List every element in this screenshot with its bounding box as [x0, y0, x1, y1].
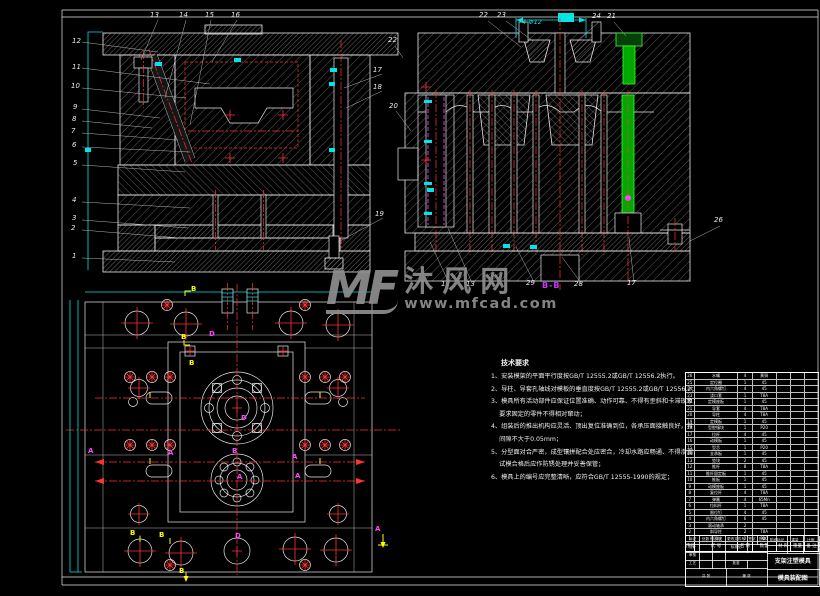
callout: 4 — [72, 197, 76, 204]
bom-cell: 限位钉 — [695, 510, 739, 516]
section-mark-b: B — [179, 568, 184, 575]
bom-cell — [791, 380, 805, 386]
bom-cell: 弹簧 — [695, 497, 739, 503]
section-mark-a: A — [375, 526, 380, 533]
bom-cell — [777, 477, 791, 483]
bom-cell: 1 — [738, 399, 752, 405]
bom-cell — [805, 497, 819, 503]
bom-cell: 拉杆 — [695, 432, 739, 438]
bom-cell: 1 — [738, 477, 752, 483]
bom-cell — [777, 523, 791, 529]
bom-cell — [791, 523, 805, 529]
tech-line: 5、分型面对合严密，成型镶拼配合处应密合，冷却水路应畅通、不得渗漏， — [491, 447, 677, 460]
bom-cell: 45 — [753, 438, 777, 444]
bom-cell — [777, 393, 791, 399]
bom-cell — [791, 432, 805, 438]
bom-cell — [777, 484, 791, 490]
section-mark-a: A — [295, 473, 300, 480]
callout: 20 — [389, 103, 398, 110]
bom-cell — [805, 490, 819, 496]
bom-cell: 8 — [686, 490, 695, 496]
bom-cell — [791, 419, 805, 425]
bom-cell — [791, 445, 805, 451]
front-section-view — [82, 20, 411, 272]
bom-cell: 4 — [738, 406, 752, 412]
section-mark-b: B — [232, 448, 237, 455]
bom-cell: 45 — [753, 386, 777, 392]
bom-cell — [791, 438, 805, 444]
bom-cell: 定模座板 — [695, 399, 739, 405]
bom-cell: 内六角螺钉 — [695, 386, 739, 392]
bom-cell: 7 — [686, 497, 695, 503]
tb-sheets: 共 张 — [686, 568, 727, 588]
technical-requirements: 技术要求 1、安装模架的平面平行度按GB/T 12555.2或GB/T 1255… — [491, 358, 677, 484]
bom-cell: 复位杆 — [695, 490, 739, 496]
bom-cell — [777, 510, 791, 516]
bom-cell: T8A — [753, 490, 777, 496]
bom-cell: 45 — [753, 451, 777, 457]
callout: 9 — [73, 104, 77, 111]
tech-line: 间隙不大于0.05mm； — [491, 434, 677, 447]
bom-cell: 浇口套 — [695, 393, 739, 399]
callout: 3 — [72, 215, 76, 222]
bom-cell: 定模板 — [695, 419, 739, 425]
bom-cell: 导柱 — [695, 412, 739, 418]
bom-cell: 内六角螺钉 — [695, 516, 739, 522]
bom-cell — [805, 393, 819, 399]
top-dimension-text: 4-Φ12 — [522, 18, 542, 26]
bom-cell: 8 — [738, 464, 752, 470]
bom-cell: 45 — [753, 510, 777, 516]
bom-table: 26水嘴4黄铜25定位圈14524内六角螺钉44523浇口套1T8A22定模座板… — [685, 372, 819, 552]
section-mark-b: B — [189, 360, 194, 367]
bom-cell: 1 — [738, 471, 752, 477]
bom-cell: 5 — [686, 510, 695, 516]
section-mark-a: A — [168, 450, 173, 457]
bom-cell: 21 — [686, 406, 695, 412]
bom-cell: 15 — [686, 445, 695, 451]
callout: 21 — [607, 13, 616, 20]
bom-cell: T8A — [753, 393, 777, 399]
bom-cell — [777, 406, 791, 412]
bom-cell: 1 — [738, 445, 752, 451]
bom-cell: T8A — [753, 464, 777, 470]
bom-cell — [791, 386, 805, 392]
bom-cell: 12 — [686, 464, 695, 470]
bom-cell: T8A — [753, 406, 777, 412]
tech-line: 3、模具所有活动部件应保证位置准确、动作可靠、不得有歪斜和卡滞现象； — [491, 396, 677, 409]
bom-cell: 22 — [686, 399, 695, 405]
section-mark-b: B — [159, 532, 164, 539]
callout: 22 — [388, 37, 397, 44]
callout: 26 — [714, 217, 723, 224]
callout: 1 — [72, 253, 76, 260]
bom-cell: 1 — [738, 419, 752, 425]
tech-line: 要求固定的零件不得相对窜动； — [491, 409, 677, 422]
bom-cell — [777, 432, 791, 438]
callout: 18 — [373, 84, 382, 91]
bom-cell: 4 — [738, 432, 752, 438]
bom-cell: 45 — [753, 458, 777, 464]
bom-cell — [805, 471, 819, 477]
bom-cell: 动模座板 — [695, 484, 739, 490]
bom-cell: 4 — [686, 516, 695, 522]
bom-cell — [777, 373, 791, 379]
bom-cell — [805, 438, 819, 444]
bom-cell — [805, 477, 819, 483]
bom-cell — [791, 451, 805, 457]
bom-cell — [805, 399, 819, 405]
plan-view — [66, 283, 400, 582]
bom-cell: 4 — [738, 412, 752, 418]
bom-cell — [753, 523, 777, 529]
bom-cell — [791, 458, 805, 464]
section-mark-b: B — [130, 530, 135, 537]
bom-cell: 10 — [686, 477, 695, 483]
bom-cell: 9 — [686, 484, 695, 490]
bom-cell: 定位圈 — [695, 380, 739, 386]
technical-requirements-title: 技术要求 — [491, 358, 677, 368]
bom-cell — [805, 386, 819, 392]
bom-cell: 滚动轴承 — [695, 523, 739, 529]
cad-sheet: 4-Φ12 — [0, 0, 820, 596]
bom-cell: 45 — [753, 399, 777, 405]
bom-cell — [791, 477, 805, 483]
callout: 14 — [179, 12, 188, 19]
bom-cell — [805, 464, 819, 470]
bom-cell — [777, 497, 791, 503]
bom-cell: 1 — [738, 484, 752, 490]
tb-drawing-subname: 模具装配图 — [767, 569, 820, 588]
bom-cell: 6 — [686, 503, 695, 509]
bom-cell: 45 — [753, 380, 777, 386]
section-mark-b: B — [191, 286, 196, 293]
callout: 13 — [150, 12, 159, 19]
callout: 24 — [592, 13, 601, 20]
bom-cell — [805, 510, 819, 516]
bom-cell — [777, 438, 791, 444]
bom-cell — [777, 380, 791, 386]
bom-cell: 1 — [738, 451, 752, 457]
callout: 10 — [71, 83, 80, 90]
section-mark-a: A — [237, 474, 242, 481]
bom-cell — [791, 393, 805, 399]
bom-cell — [777, 516, 791, 522]
bom-cell — [791, 503, 805, 509]
bom-cell: 17 — [686, 432, 695, 438]
bom-cell — [777, 386, 791, 392]
bom-cell: 动模板 — [695, 438, 739, 444]
bom-cell: 14 — [686, 451, 695, 457]
bom-cell: 水嘴 — [695, 373, 739, 379]
bom-cell: 1 — [738, 503, 752, 509]
bom-cell: P20 — [753, 425, 777, 431]
bom-cell — [791, 399, 805, 405]
bom-cell: 26 — [686, 373, 695, 379]
watermark-logo: MF — [326, 266, 398, 314]
bom-cell: 1 — [738, 380, 752, 386]
bom-cell — [791, 425, 805, 431]
tech-line: 6、模具上的编号应完整清晰，应符合GB/T 12555-1990的规定； — [491, 472, 677, 485]
bom-cell — [805, 373, 819, 379]
tech-line: 4、组装后的推出机构应灵活、顶出复位准确到位，各承压面接触良好，其 — [491, 421, 677, 434]
callout: 19 — [375, 211, 384, 218]
bom-cell — [805, 380, 819, 386]
callout: 15 — [205, 12, 214, 19]
bom-cell — [777, 451, 791, 457]
bom-cell: 1 — [738, 393, 752, 399]
section-mark-d: D — [241, 415, 247, 422]
bom-cell — [777, 471, 791, 477]
bom-cell: 19 — [686, 419, 695, 425]
bom-cell — [791, 471, 805, 477]
bom-cell: 20 — [686, 412, 695, 418]
bom-cell — [805, 523, 819, 529]
bom-cell: 型芯 — [695, 445, 739, 451]
callout: 5 — [73, 160, 77, 167]
tb-drawing-name: 支架注塑模具 — [767, 553, 820, 570]
bom-cell — [777, 503, 791, 509]
bom-cell: 45 — [753, 432, 777, 438]
bom-cell — [805, 425, 819, 431]
bom-cell — [791, 497, 805, 503]
bom-cell: 支承板 — [695, 451, 739, 457]
bom-cell — [791, 412, 805, 418]
bom-cell: T8A — [753, 412, 777, 418]
watermark-site-name: 沐风网 — [404, 266, 558, 296]
section-mark-b: B — [181, 334, 186, 341]
callout: 17 — [373, 67, 382, 74]
bom-cell: 推杆固定板 — [695, 471, 739, 477]
bom-cell: P20 — [753, 445, 777, 451]
callout: 22 — [479, 12, 488, 19]
bom-cell: 推杆 — [695, 464, 739, 470]
bom-cell — [777, 445, 791, 451]
bom-cell: 1 — [738, 425, 752, 431]
bom-cell — [777, 412, 791, 418]
bom-cell — [805, 419, 819, 425]
bom-cell — [805, 406, 819, 412]
tech-line: 试模合格后应作防锈处理并妥善保管； — [491, 459, 677, 472]
bom-cell — [805, 412, 819, 418]
bom-cell: 2 — [738, 458, 752, 464]
bom-cell — [791, 484, 805, 490]
bom-cell: 4 — [738, 510, 752, 516]
bom-cell — [805, 432, 819, 438]
bom-cell: 45 — [753, 516, 777, 522]
bom-cell: 11 — [686, 471, 695, 477]
section-mark-d: D — [235, 533, 241, 540]
bom-cell — [791, 510, 805, 516]
bom-cell: 65Mn — [753, 497, 777, 503]
bom-cell — [805, 484, 819, 490]
bom-cell — [805, 445, 819, 451]
callout: 7 — [71, 128, 75, 135]
bom-cell — [777, 464, 791, 470]
callout: 11 — [72, 64, 81, 71]
watermark: MF 沐风网 www.mfcad.com — [326, 266, 522, 324]
callout: 6 — [72, 142, 76, 149]
callout: 8 — [72, 116, 76, 123]
bom-cell: 1 — [738, 438, 752, 444]
bom-cell: 45 — [753, 419, 777, 425]
bom-cell — [777, 419, 791, 425]
callout: 17 — [627, 280, 636, 287]
bom-cell: 拉料杆 — [695, 503, 739, 509]
callout: 12 — [72, 38, 81, 45]
bom-cell: 45 — [753, 471, 777, 477]
bom-cell — [791, 516, 805, 522]
bom-cell: T8A — [753, 503, 777, 509]
bom-cell: 型腔镶块 — [695, 425, 739, 431]
bom-cell: 黄铜 — [753, 373, 777, 379]
bom-cell: 16 — [686, 438, 695, 444]
tech-line: 2、导柱、导套孔轴线对模板的垂直度按GB/T 12555.2或GB/T 1255… — [491, 384, 677, 397]
bom-cell: 推板 — [695, 477, 739, 483]
callout: 16 — [231, 12, 240, 19]
bom-cell: 4 — [738, 497, 752, 503]
bom-cell: 45 — [753, 477, 777, 483]
bom-cell: 3 — [686, 523, 695, 529]
callout: 28 — [574, 281, 583, 288]
bom-cell: 45 — [753, 484, 777, 490]
section-mark-a: A — [88, 448, 93, 455]
callout: 23 — [497, 12, 506, 19]
bom-cell: 导套 — [695, 406, 739, 412]
watermark-url: www.mfcad.com — [404, 296, 558, 313]
bom-cell: 6 — [738, 516, 752, 522]
bom-cell: 13 — [686, 458, 695, 464]
bom-cell — [791, 464, 805, 470]
bom-cell: 2 — [738, 523, 752, 529]
tech-line: 1、安装模架的平面平行度按GB/T 12555.2或GB/T 12556.2执行… — [491, 371, 677, 384]
title-block: 标记 处数 分区 更改文件号 签字 日期 设计 标准化 审核 工艺 批准 共 张… — [685, 535, 819, 588]
bom-cell: 4 — [738, 490, 752, 496]
tb-page: 第 张 — [726, 568, 768, 588]
bom-cell: 4 — [738, 386, 752, 392]
section-mark-a: A — [292, 454, 297, 461]
section-mark-d: D — [209, 331, 215, 338]
bom-cell — [805, 516, 819, 522]
bom-cell: 24 — [686, 386, 695, 392]
bom-cell — [791, 490, 805, 496]
bom-cell — [777, 458, 791, 464]
bom-cell — [805, 503, 819, 509]
bom-cell — [777, 490, 791, 496]
bom-cell: 23 — [686, 393, 695, 399]
side-section-view: 4-Φ12 — [398, 13, 720, 290]
bom-cell — [777, 399, 791, 405]
bom-cell: 垫块 — [695, 458, 739, 464]
bom-cell — [791, 406, 805, 412]
bom-cell: 4 — [738, 373, 752, 379]
bom-cell: 18 — [686, 425, 695, 431]
bom-cell — [791, 373, 805, 379]
bom-cell — [805, 458, 819, 464]
callout: 2 — [71, 225, 75, 232]
bom-cell — [805, 451, 819, 457]
bom-cell — [777, 425, 791, 431]
bom-cell: 25 — [686, 380, 695, 386]
